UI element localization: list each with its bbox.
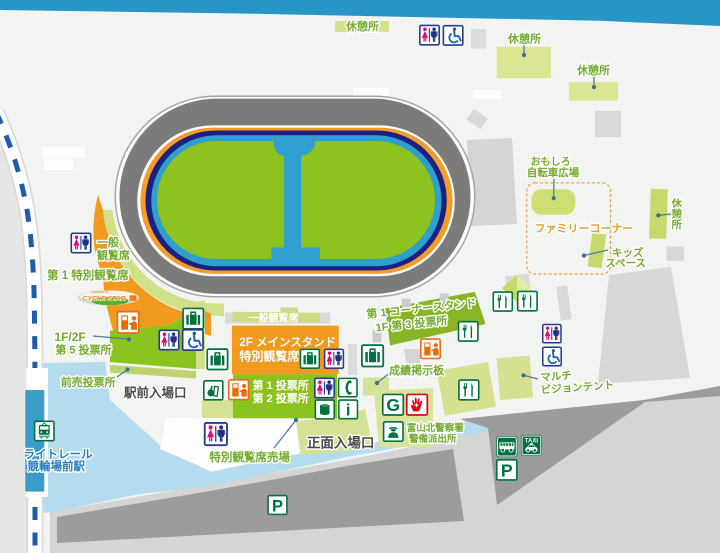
svg-text:スペース: スペース <box>605 258 646 270</box>
svg-text:一般観覧席: 一般観覧席 <box>249 312 299 325</box>
svg-text:一般: 一般 <box>97 235 119 249</box>
svg-text:ファミリーコーナー: ファミリーコーナー <box>534 222 633 235</box>
svg-text:Number's!: Number's! <box>91 290 109 294</box>
svg-text:駅前入場口: 駅前入場口 <box>123 385 187 400</box>
svg-text:1F/2F: 1F/2F <box>54 330 85 344</box>
svg-text:休憩所: 休憩所 <box>671 197 683 231</box>
svg-text:2F メインスタンド: 2F メインスタンド <box>239 335 336 349</box>
svg-text:特別観覧席: 特別観覧席 <box>239 349 299 364</box>
svg-text:第 1 投票所: 第 1 投票所 <box>253 378 309 392</box>
svg-text:休憩所: 休憩所 <box>345 19 379 33</box>
svg-text:富山北警察署: 富山北警察署 <box>407 422 465 434</box>
svg-text:第 1 特別観覧席: 第 1 特別観覧席 <box>47 268 129 282</box>
svg-text:休憩所: 休憩所 <box>576 63 610 77</box>
svg-text:警備派出所: 警備派出所 <box>409 433 457 445</box>
svg-text:ライトレール: ライトレール <box>24 448 93 461</box>
svg-text:休憩所: 休憩所 <box>507 32 541 46</box>
svg-text:自転車広場: 自転車広場 <box>527 166 580 179</box>
svg-text:第 5 投票所: 第 5 投票所 <box>55 343 111 357</box>
svg-text:成績掲示板: 成績掲示板 <box>389 363 445 377</box>
svg-text:観覧席: 観覧席 <box>97 248 130 262</box>
svg-text:特別観覧席売場: 特別観覧席売場 <box>209 450 290 464</box>
svg-text:正面入場口: 正面入場口 <box>307 435 375 451</box>
svg-text:競輪場前駅: 競輪場前駅 <box>28 459 86 473</box>
svg-text:第 2 投票所: 第 2 投票所 <box>253 391 309 405</box>
svg-text:CYCLE STAR: CYCLE STAR <box>83 296 126 303</box>
svg-text:前売投票所: 前売投票所 <box>61 375 116 389</box>
